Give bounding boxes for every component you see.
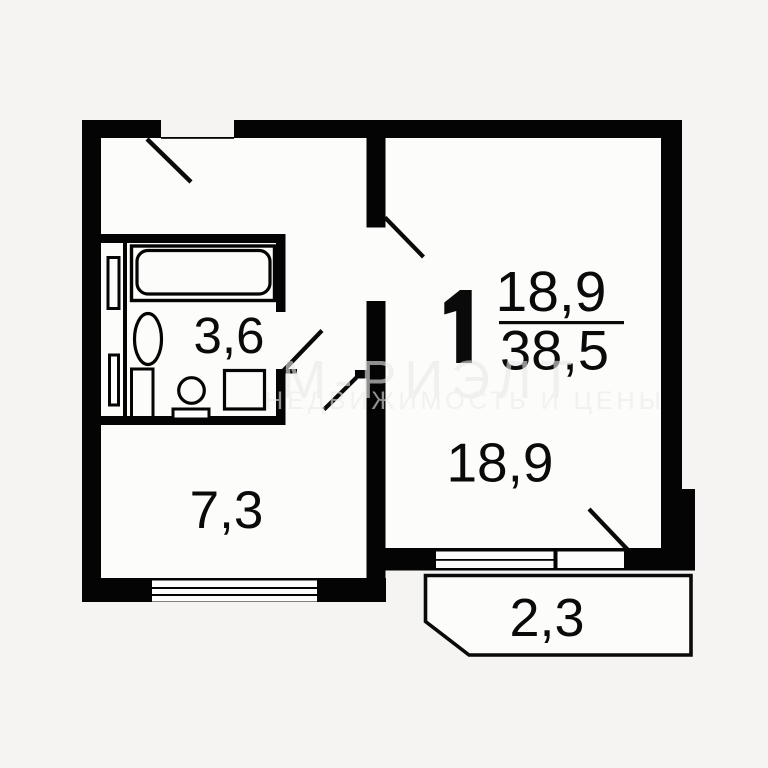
svg-text:3,6: 3,6: [194, 307, 265, 364]
svg-text:7,3: 7,3: [190, 481, 264, 540]
svg-text:18,9: 18,9: [496, 260, 607, 324]
svg-text:НЕДВИЖИМОСТЬ И ЦЕНЫ: НЕДВИЖИМОСТЬ И ЦЕНЫ: [265, 387, 665, 415]
svg-text:18,9: 18,9: [446, 432, 553, 494]
svg-text:2,3: 2,3: [509, 588, 584, 648]
